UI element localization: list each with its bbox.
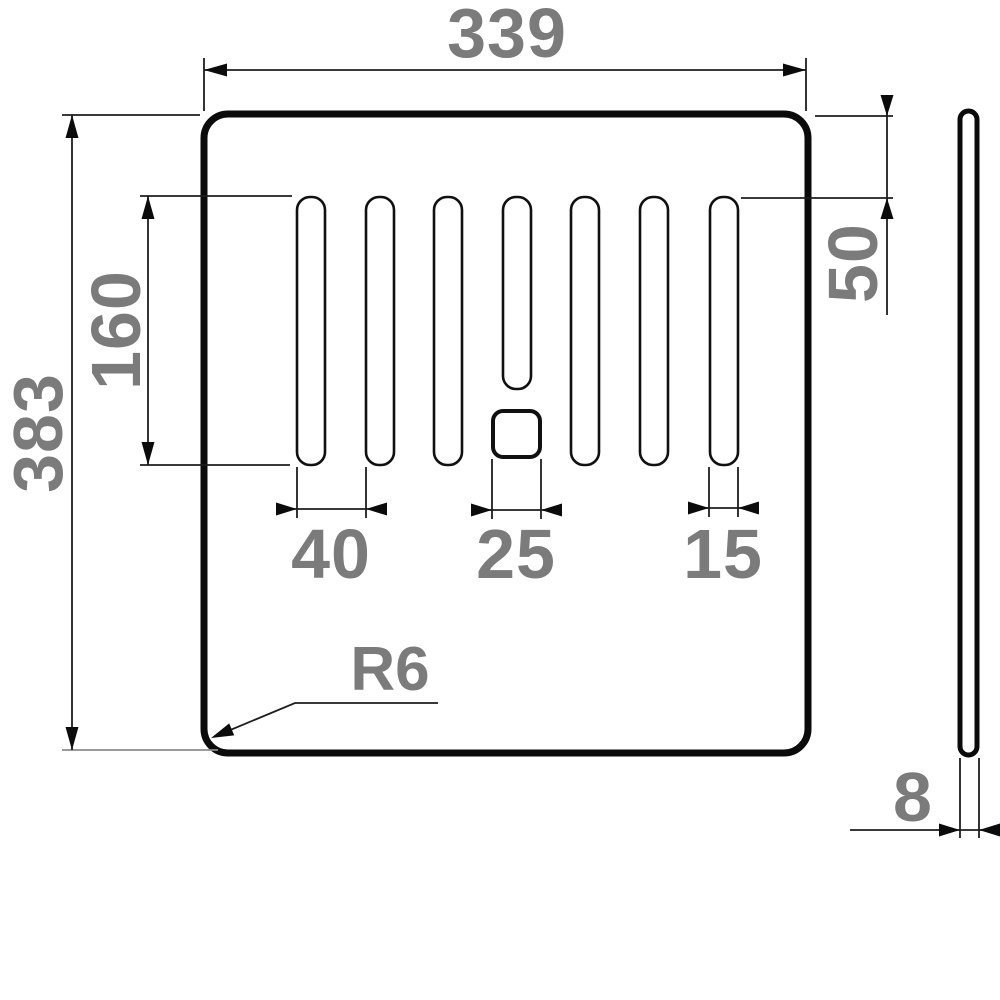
dim-label-slot-length: 160 xyxy=(77,270,155,390)
dim-label-slot-width: 15 xyxy=(683,515,763,593)
slot xyxy=(640,197,668,465)
slot xyxy=(710,197,738,465)
slot xyxy=(434,197,462,465)
slot xyxy=(366,197,394,465)
square-hole xyxy=(493,411,540,457)
dim-label-overall-width: 339 xyxy=(447,0,567,72)
slot-short-center xyxy=(503,197,531,389)
dim-label-slot-top-offset: 50 xyxy=(814,223,892,303)
dim-label-slot-pitch: 40 xyxy=(291,515,371,593)
slot xyxy=(571,197,599,465)
technical-drawing: 339 383 160 50 40 xyxy=(0,0,1000,1000)
slot xyxy=(297,197,325,465)
dim-overall-width: 339 xyxy=(204,0,806,111)
dim-thickness: 8 xyxy=(850,758,1000,838)
dim-overall-height: 383 xyxy=(0,115,218,750)
dim-label-thickness: 8 xyxy=(893,758,933,836)
dim-label-square-width: 25 xyxy=(476,515,556,593)
dim-label-overall-height: 383 xyxy=(0,373,77,493)
dim-label-corner-radius: R6 xyxy=(350,635,429,704)
side-view-profile xyxy=(960,111,977,755)
